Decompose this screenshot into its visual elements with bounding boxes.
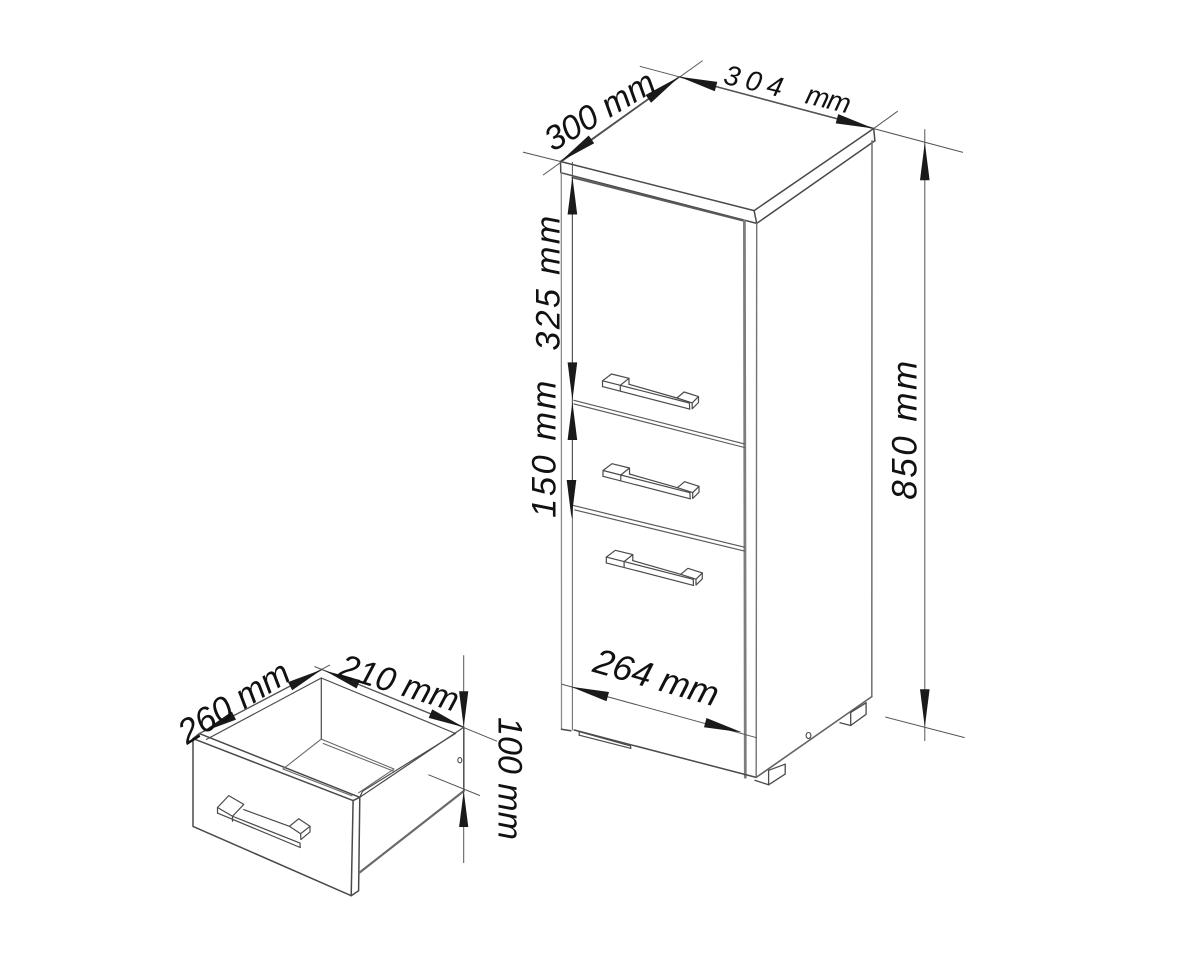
svg-text:325 mm: 325 mm: [530, 213, 568, 350]
svg-text:264 mm: 264 mm: [588, 640, 723, 714]
svg-text:304 mm: 304 mm: [721, 59, 854, 119]
svg-text:300 mm: 300 mm: [537, 63, 662, 159]
svg-text:100 mm: 100 mm: [491, 717, 529, 840]
svg-text:210 mm: 210 mm: [334, 647, 464, 720]
svg-text:260 mm: 260 mm: [170, 654, 297, 753]
svg-text:150 mm: 150 mm: [526, 378, 564, 518]
svg-text:850 mm: 850 mm: [886, 358, 925, 499]
